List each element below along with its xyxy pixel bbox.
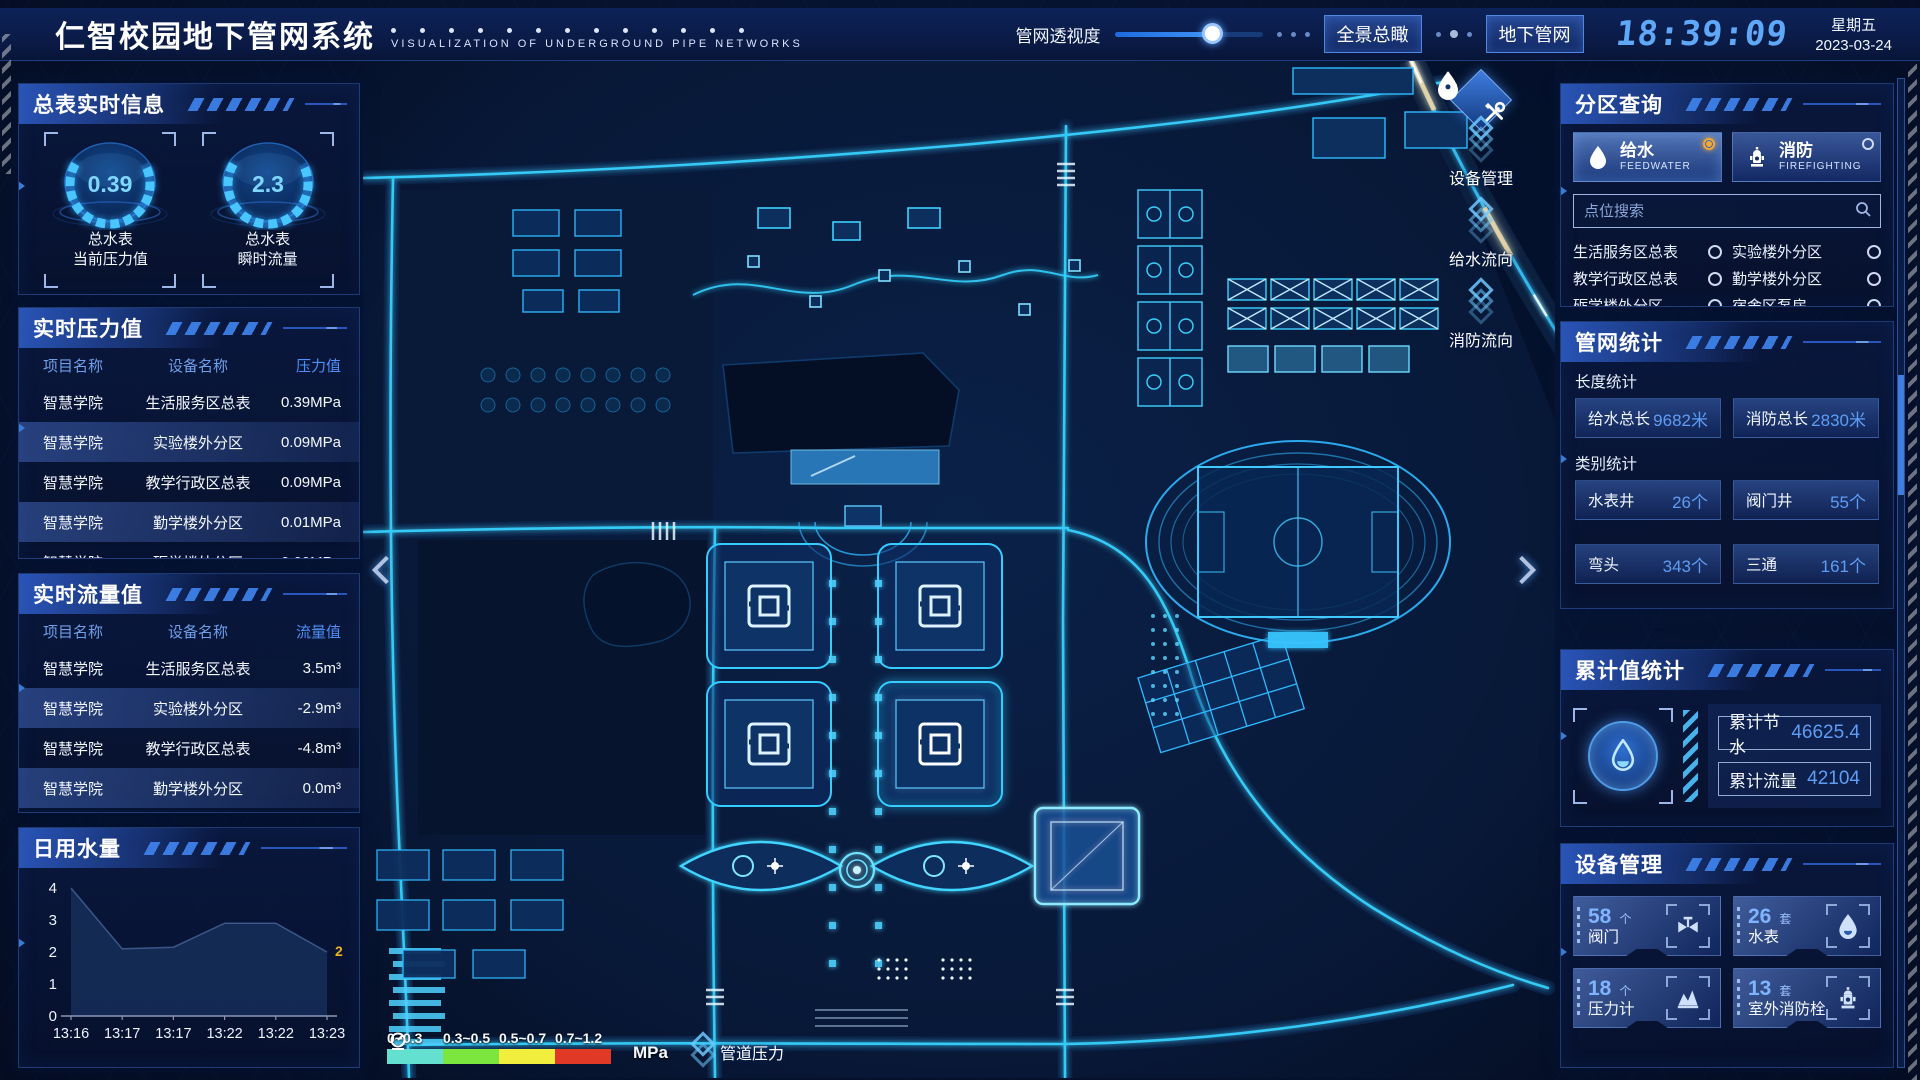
flow-table-row: 智慧学院实验楼外分区-2.9m³ [19, 688, 359, 728]
device-name: 室外消防栓 [1748, 1001, 1826, 1019]
line-decoration [261, 847, 347, 849]
column-header: 项目名称 [27, 621, 119, 642]
zone-tab-feedwater[interactable]: 给水 FEEDWATER [1573, 132, 1722, 182]
map-tool-label: 设备管理 [1449, 165, 1513, 189]
zone-item-label: 生活服务区总表 [1573, 241, 1678, 262]
device-icon-frame [1666, 904, 1710, 948]
stat-value: 55个 [1830, 488, 1866, 513]
chevron-right-icon [1508, 556, 1536, 584]
stat-label: 消防总长 [1746, 407, 1808, 429]
map-tool-label: 消防流向 [1449, 327, 1513, 351]
device-icon-frame [1826, 904, 1870, 948]
table-cell: 教学行政区总表 [119, 738, 277, 759]
svg-text:13:22: 13:22 [206, 1026, 242, 1042]
legend-range: 0.3~0.5 [443, 1030, 499, 1064]
chevron-down-icon [1472, 288, 1490, 321]
slider-fill [1115, 32, 1213, 37]
master-meter-gauge: 0.39 总水表当前压力值 [44, 132, 176, 288]
slash-decoration [1708, 664, 1815, 677]
table-cell: 实验楼外分区 [119, 432, 277, 453]
table-cell: -2.9m³ [277, 700, 351, 717]
device-count: 58个 [1588, 905, 1631, 929]
device-name: 阀门 [1588, 929, 1631, 947]
header-dots [391, 28, 803, 33]
device-card-hydrant: 13套 室外消防栓 [1733, 968, 1881, 1028]
line-decoration [283, 327, 347, 329]
device-name: 压力计 [1588, 1001, 1635, 1019]
radio-icon[interactable] [1708, 299, 1722, 308]
stat-box: 弯头 343个 [1575, 544, 1721, 584]
device-count: 18个 [1588, 977, 1635, 1001]
stat-label: 累计节水 [1729, 708, 1791, 758]
device-icon-frame [1666, 976, 1710, 1020]
zone-search-box[interactable] [1573, 194, 1881, 228]
water-drop-icon [1588, 721, 1658, 791]
pipe-pressure-legend: 0~0.3 0.3~0.5 0.5~0.7 0.7~1.2 MPa 管道压力 [387, 1030, 784, 1064]
legend-color-swatch [555, 1049, 611, 1064]
underground-pipes-button[interactable]: 地下管网 [1486, 15, 1584, 53]
search-icon[interactable] [1854, 200, 1872, 223]
table-cell: -4.8m³ [277, 740, 351, 757]
zone-list-item[interactable]: 砺学楼外分区 [1573, 292, 1722, 307]
water-saving-icon-tile [1573, 708, 1673, 804]
pressure-table-header: 项目名称设备名称压力值 [19, 348, 359, 382]
table-cell: 0.01MPa [277, 514, 351, 531]
table-cell: 勤学楼外分区 [119, 778, 277, 799]
daily-water-chart: 0123413:1613:1713:1713:2213:2213:23 2 [19, 868, 359, 1055]
stat-box [1575, 608, 1721, 609]
gauge-label: 总水表瞬时流量 [238, 230, 298, 270]
stat-value: 161个 [1821, 552, 1866, 577]
device-card-pressure-gauge: 18个 压力计 [1573, 968, 1721, 1028]
dot-separator [1436, 30, 1472, 38]
gauge-dial: 2.3 [206, 132, 330, 230]
legend-range-label: 0.7~1.2 [555, 1030, 611, 1046]
table-cell: 智慧学院 [27, 658, 119, 679]
section-realtime-pressure: 实时压力值 项目名称设备名称压力值 智慧学院生活服务区总表0.39MPa 智慧学… [18, 307, 360, 559]
svg-text:4: 4 [49, 880, 57, 897]
zone-list-item[interactable]: 勤学楼外分区 [1732, 265, 1881, 292]
table-cell: 0.00MPa [277, 554, 351, 560]
device-icon-frame [1826, 976, 1870, 1020]
section-title: 分区查询 [1575, 89, 1663, 119]
section-device-management: 设备管理 58个 阀门 26套 水表 18个 压力计 [1560, 843, 1894, 1068]
line-decoration [283, 593, 347, 595]
water-drop-icon [1586, 145, 1610, 169]
stat-label: 水表井 [1588, 489, 1635, 511]
stat-value: 46625.4 [1791, 722, 1860, 744]
area-chart: 0123413:1613:1713:1713:2213:2213:23 2 [25, 876, 351, 1050]
cumulative-stat-row: 累计流量 42104 [1718, 762, 1871, 796]
date-block: 星期五 2023-03-24 [1815, 14, 1892, 54]
zone-tab-sublabel: FIREFIGHTING [1779, 161, 1862, 172]
left-panel: 总表实时信息 0.39 总水表当前压力值 2.3 总水表瞬时流量 [18, 83, 360, 1068]
device-card-water-meter: 26套 水表 [1733, 896, 1881, 956]
slash-decoration [144, 842, 251, 855]
right-panel: 分区查询 给水 FEEDWATER 消防 FIREFIGHTING 生活服务区总… [1560, 83, 1894, 1068]
zone-item-label: 教学行政区总表 [1573, 268, 1678, 289]
stat-value: 26个 [1672, 488, 1708, 513]
length-stats-label: 长度统计 [1575, 370, 1879, 392]
hatch-divider [1683, 710, 1698, 802]
table-cell: 0.09MPa [277, 474, 351, 491]
zone-item-label: 实验楼外分区 [1732, 241, 1822, 262]
slash-decoration [166, 322, 273, 335]
valve-icon [1675, 913, 1701, 939]
line-decoration [1803, 863, 1881, 865]
radio-icon[interactable] [1867, 299, 1881, 308]
slash-decoration [188, 98, 295, 111]
device-unit: 套 [1779, 984, 1791, 998]
device-unit: 个 [1619, 912, 1631, 926]
pressure-table: 智慧学院生活服务区总表0.39MPa 智慧学院实验楼外分区0.09MPa 智慧学… [19, 382, 359, 559]
chevron-down-icon [1472, 126, 1490, 159]
svg-text:13:17: 13:17 [155, 1026, 191, 1042]
stat-value: 2830米 [1811, 406, 1866, 431]
zone-list-item[interactable]: 宿舍区泵房 [1732, 292, 1881, 307]
zone-list-item[interactable]: 实验楼外分区 [1732, 238, 1881, 265]
stat-label: 阀门井 [1746, 489, 1793, 511]
zone-item-label: 砺学楼外分区 [1573, 295, 1663, 307]
slider-knob[interactable] [1202, 23, 1223, 44]
pressure-table-row: 智慧学院生活服务区总表0.39MPa [19, 382, 359, 422]
section-title: 总表实时信息 [33, 89, 165, 119]
column-header: 设备名称 [119, 621, 277, 642]
section-pipe-stats: 管网统计 长度统计 给水总长 9682米 消防总长 2830米 类别统计 水表井… [1560, 321, 1894, 609]
stat-box: 给水总长 9682米 [1575, 398, 1721, 438]
line-decoration [1825, 669, 1881, 671]
radio-icon[interactable] [1708, 272, 1722, 286]
hydrant-icon [1835, 985, 1861, 1011]
flow-table-row: 智慧学院生活服务区总表3.5m³ [19, 648, 359, 688]
line-decoration [1803, 341, 1881, 343]
pipe-pressure-label: 管道压力 [720, 1040, 784, 1064]
device-count: 26套 [1748, 905, 1791, 929]
device-card-valve: 58个 阀门 [1573, 896, 1721, 956]
table-cell: 智慧学院 [27, 512, 119, 533]
table-cell: 智慧学院 [27, 698, 119, 719]
legend-unit: MPa [633, 1043, 668, 1063]
legend-color-swatch [443, 1049, 499, 1064]
pipe-opacity-label: 管网透视度 [1016, 22, 1101, 47]
table-cell: 智慧学院 [27, 392, 119, 413]
pressure-table-row: 智慧学院勤学楼外分区0.01MPa [19, 502, 359, 542]
flow-table-row: 智慧学院砺学楼外分区2.2m³ [19, 808, 359, 813]
stat-box: 阀门井 55个 [1733, 480, 1879, 520]
pipe-opacity-slider[interactable] [1115, 25, 1263, 43]
slash-decoration [1686, 336, 1793, 349]
app-title: 仁智校园地下管网系统 [55, 12, 375, 56]
zone-tab-label: 消防 [1779, 142, 1862, 161]
chevron-down-icon [694, 1042, 712, 1064]
zone-search-input[interactable] [1582, 202, 1854, 221]
svg-text:2: 2 [335, 943, 343, 959]
line-decoration [1803, 103, 1881, 105]
section-title: 日用水量 [33, 833, 121, 863]
map-tool-hydrant[interactable]: 消防流向 [1449, 280, 1513, 351]
section-title: 实时流量值 [33, 579, 143, 609]
chevron-down-icon [1472, 207, 1490, 240]
master-meter-gauge: 2.3 总水表瞬时流量 [202, 132, 334, 288]
section-zone-query: 分区查询 给水 FEEDWATER 消防 FIREFIGHTING 生活服务区总… [1560, 83, 1894, 307]
table-cell: 勤学楼外分区 [119, 512, 277, 533]
section-master-meter: 总表实时信息 0.39 总水表当前压力值 2.3 总水表瞬时流量 [18, 83, 360, 295]
map-toolbar: 设备管理 给水流向 消防流向 [1433, 70, 1529, 361]
legend-range: 0.5~0.7 [499, 1030, 555, 1064]
flow-table-row: 智慧学院勤学楼外分区0.0m³ [19, 768, 359, 808]
zone-tab-sublabel: FEEDWATER [1620, 161, 1691, 172]
table-cell: 0.0m³ [277, 780, 351, 797]
svg-text:13:16: 13:16 [53, 1026, 89, 1042]
line-decoration [305, 103, 347, 105]
section-cumulative: 累计值统计 累计节水 46625.4 累计流量 42104 [1560, 649, 1894, 827]
column-header: 项目名称 [27, 355, 119, 376]
table-cell: 砺学楼外分区 [119, 552, 277, 560]
svg-text:0: 0 [49, 1008, 57, 1025]
table-cell: 0.09MPa [277, 434, 351, 451]
zone-tab-label: 给水 [1620, 142, 1691, 161]
table-cell: 智慧学院 [27, 432, 119, 453]
device-unit: 套 [1779, 912, 1791, 926]
water-meter-icon [1835, 913, 1861, 939]
right-scroll-thumb[interactable] [1898, 375, 1904, 495]
table-cell: 智慧学院 [27, 778, 119, 799]
device-name: 水表 [1748, 929, 1791, 947]
zone-tab-firefighting[interactable]: 消防 FIREFIGHTING [1732, 132, 1881, 182]
table-cell: 教学行政区总表 [119, 472, 277, 493]
app-subtitle: VISUALIZATION OF UNDERGROUND PIPE NETWOR… [391, 38, 803, 50]
chevron-left-icon [372, 556, 400, 584]
zone-list-item[interactable]: 生活服务区总表 [1573, 238, 1722, 265]
table-cell: 0.39MPa [277, 394, 351, 411]
svg-text:13:23: 13:23 [309, 1026, 345, 1042]
stat-value: 42104 [1807, 768, 1860, 790]
legend-range-label: 0.5~0.7 [499, 1030, 555, 1046]
svg-text:2: 2 [49, 944, 57, 961]
map-tool-water-drop[interactable]: 给水流向 [1449, 199, 1513, 270]
clock: 18:39:09 [1613, 14, 1789, 54]
campus-map-viewport[interactable]: 设备管理 给水流向 消防流向 0~0.3 0.3~0.5 0.5~0.7 0.7… [363, 60, 1555, 1080]
header-bar: 仁智校园地下管网系统 VISUALIZATION OF UNDERGROUND … [0, 8, 1920, 61]
hydrant-icon [1433, 70, 1463, 100]
svg-text:2.3: 2.3 [252, 171, 284, 197]
table-cell: 生活服务区总表 [119, 392, 277, 413]
map-tool-label: 给水流向 [1449, 246, 1513, 270]
table-cell: 实验楼外分区 [119, 698, 277, 719]
radio-icon[interactable] [1703, 138, 1715, 150]
radio-icon[interactable] [1867, 245, 1881, 259]
stat-label: 累计流量 [1729, 767, 1797, 792]
flow-table-header: 项目名称设备名称流量值 [19, 614, 359, 648]
stat-box [1733, 608, 1879, 609]
slash-decoration [166, 588, 273, 601]
stat-label: 弯头 [1588, 553, 1619, 575]
legend-range-label: 0.3~0.5 [443, 1030, 499, 1046]
left-edge-decoration [2, 34, 11, 174]
svg-text:13:22: 13:22 [258, 1026, 294, 1042]
column-header: 流量值 [277, 621, 351, 642]
radio-icon[interactable] [1867, 272, 1881, 286]
section-title: 设备管理 [1575, 849, 1663, 879]
stat-box: 三通 161个 [1733, 544, 1879, 584]
date: 2023-03-24 [1815, 37, 1892, 54]
stat-value: 9682米 [1653, 406, 1708, 431]
section-title: 累计值统计 [1575, 655, 1685, 685]
legend-range: 0.7~1.2 [555, 1030, 611, 1064]
map-prev-arrow[interactable] [369, 548, 403, 592]
dot-separator [1277, 32, 1310, 37]
hydrant-icon [1745, 145, 1769, 169]
flow-table-row: 智慧学院教学行政区总表-4.8m³ [19, 728, 359, 768]
right-edge-decoration [1908, 64, 1917, 1080]
zone-list-item[interactable]: 教学行政区总表 [1573, 265, 1722, 292]
legend-color-swatch [499, 1049, 555, 1064]
campus-map [363, 60, 1555, 1078]
column-header: 设备名称 [119, 355, 277, 376]
section-daily-water: 日用水量 0123413:1613:1713:1713:2213:2213:23… [18, 827, 360, 1068]
stat-label: 三通 [1746, 553, 1777, 575]
radio-icon[interactable] [1708, 245, 1722, 259]
stat-box: 水表井 26个 [1575, 480, 1721, 520]
right-scroll-track[interactable] [1897, 78, 1905, 1068]
svg-text:3: 3 [49, 912, 57, 929]
slash-decoration [1686, 98, 1793, 111]
svg-text:0.39: 0.39 [88, 171, 133, 197]
table-cell: 智慧学院 [27, 738, 119, 759]
svg-text:13:17: 13:17 [104, 1026, 140, 1042]
svg-text:1: 1 [49, 976, 57, 993]
table-cell: 3.5m³ [277, 660, 351, 677]
radio-icon[interactable] [1862, 138, 1874, 150]
column-header: 压力值 [277, 355, 351, 376]
gauge-label: 总水表当前压力值 [73, 230, 148, 270]
stat-box: 消防总长 2830米 [1733, 398, 1879, 438]
stat-label: 给水总长 [1588, 407, 1650, 429]
pressure-table-row: 智慧学院教学行政区总表0.09MPa [19, 462, 359, 502]
flow-table: 智慧学院生活服务区总表3.5m³ 智慧学院实验楼外分区-2.9m³ 智慧学院教学… [19, 648, 359, 813]
title-decoration: VISUALIZATION OF UNDERGROUND PIPE NETWOR… [391, 18, 803, 50]
table-cell: 智慧学院 [27, 552, 119, 560]
section-title: 实时压力值 [33, 313, 143, 343]
zone-item-label: 宿舍区泵房 [1732, 295, 1807, 307]
cumulative-stat-row: 累计节水 46625.4 [1718, 716, 1871, 750]
overview-button[interactable]: 全景总瞰 [1324, 15, 1422, 53]
pressure-gauge-icon [1675, 985, 1701, 1011]
device-unit: 个 [1619, 984, 1631, 998]
zone-item-label: 勤学楼外分区 [1732, 268, 1822, 289]
table-cell: 生活服务区总表 [119, 658, 277, 679]
pressure-table-row: 智慧学院砺学楼外分区0.00MPa [19, 542, 359, 559]
slash-decoration [1686, 858, 1793, 871]
map-next-arrow[interactable] [1505, 548, 1539, 592]
section-title: 管网统计 [1575, 327, 1663, 357]
pressure-table-row: 智慧学院实验楼外分区0.09MPa [19, 422, 359, 462]
stat-value: 343个 [1663, 552, 1708, 577]
section-realtime-flow: 实时流量值 项目名称设备名称流量值 智慧学院生活服务区总表3.5m³ 智慧学院实… [18, 573, 360, 813]
table-cell: 智慧学院 [27, 472, 119, 493]
device-count: 13套 [1748, 977, 1826, 1001]
category-stats-label: 类别统计 [1575, 452, 1879, 474]
gauge-dial: 0.39 [48, 132, 172, 230]
weekday: 星期五 [1831, 14, 1876, 35]
